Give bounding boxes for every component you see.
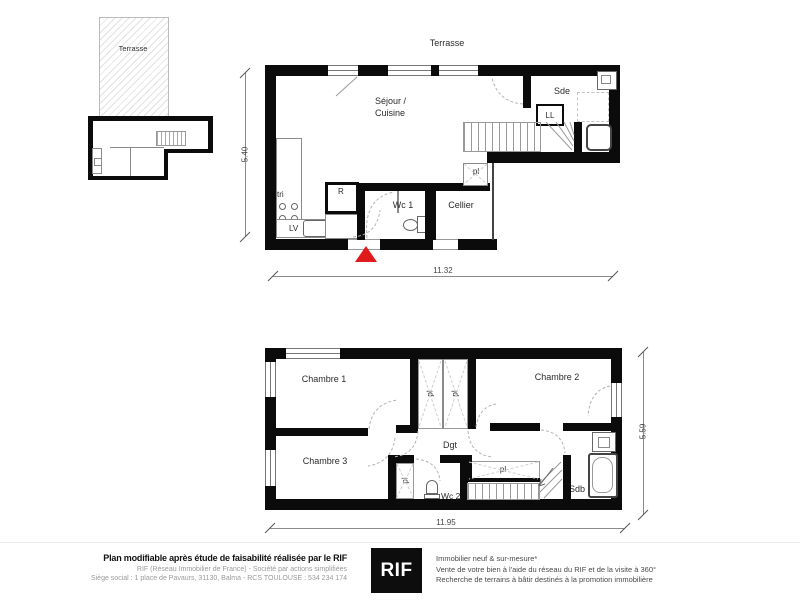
gf-label-lv: LV	[289, 224, 298, 233]
mini-wall-bottom-left	[88, 176, 168, 180]
gf-label-fridge: R	[338, 187, 344, 196]
ff-wall-left-b	[265, 397, 276, 450]
ff-room-dgt-label: Dgt	[438, 440, 462, 450]
gf-wc1-toilet-bowl	[403, 219, 418, 231]
ff-door-arc-closet-right	[468, 431, 493, 457]
gf-door-arc-sde	[492, 78, 523, 104]
footer-tagline-line2: Vente de votre bien à l'aide du réseau d…	[436, 565, 696, 576]
gf-room-sejour-line2: Cuisine	[375, 108, 405, 118]
mini-appliance	[94, 158, 102, 166]
ff-window-right	[611, 383, 622, 417]
window-leaf-lines	[336, 77, 357, 96]
ff-window-top	[286, 348, 340, 359]
gf-cabinet-below-fridge	[325, 214, 359, 239]
gf-window-top-1	[328, 65, 358, 76]
closet-cross-dashes	[397, 164, 538, 497]
ff-closet-horizontal-bottom	[467, 478, 540, 482]
gf-bay-mullion	[431, 65, 439, 76]
ff-closet-pl-label-1: pl	[426, 384, 435, 404]
ff-door-arc-sdb	[541, 430, 565, 453]
ff-wall-left-a	[265, 348, 276, 362]
ff-wall-right-a	[611, 348, 622, 383]
gf-sde-vanity	[577, 92, 609, 122]
gf-cellier-door-opening	[433, 239, 458, 250]
gf-room-cellier-label: Cellier	[438, 200, 484, 210]
rif-logo-text: RIF	[380, 560, 412, 582]
ff-wall-ch3-right	[388, 463, 396, 499]
ff-window-left-1	[265, 362, 276, 397]
gf-wall-bottom-c	[458, 239, 497, 250]
ff-room-chambre1-label: Chambre 1	[294, 374, 354, 384]
ff-door-arc-closet-left	[393, 431, 418, 457]
gf-cooktop-burner-2	[291, 203, 298, 210]
ff-wall-closet-ch2	[468, 359, 476, 429]
gf-closet-pl-label: pl	[464, 167, 488, 176]
stair-winder-treads	[540, 122, 574, 498]
gf-sde-partition-wall	[523, 76, 531, 108]
gf-wall-bottom-a	[265, 239, 348, 250]
mini-wall-right	[208, 116, 213, 153]
gf-thin-wall-right-lower	[492, 163, 494, 240]
footer-company-line2: Siège social : 1 place de Pavaurs, 31130…	[40, 574, 347, 583]
gf-wall-kitchen-hall	[357, 183, 365, 240]
mini-wall-top	[88, 116, 213, 121]
rif-logo: RIF	[371, 548, 422, 593]
ff-bathtub-inner	[592, 457, 613, 493]
footer-tagline-line1: Immobilier neuf & sur-mesure*	[436, 554, 696, 565]
mini-terrace-area	[99, 17, 169, 118]
ff-room-wc2-label: Wc 2	[441, 491, 460, 501]
gf-terrace-label: Terrasse	[422, 38, 472, 48]
floor-plan-page: Terrasse Terrasse Séjour / Cuisine Sde L…	[0, 0, 800, 600]
gf-door-arc-hall	[367, 192, 394, 238]
ff-dim-height-label: 5.59	[639, 412, 648, 452]
ff-wall-wc2-top-a	[388, 455, 414, 463]
ff-wall-top-b	[340, 348, 622, 359]
ff-wall-ch1-closet	[410, 359, 418, 429]
ff-sdb-sink-basin	[598, 437, 610, 448]
gf-cooktop-burner-1	[279, 203, 286, 210]
gf-wall-wc1-cellier	[425, 183, 436, 240]
stair-direction-arrow	[539, 468, 553, 486]
ff-dim-line-width	[270, 528, 625, 529]
ff-window-left-2	[265, 450, 276, 486]
footer-company-line1: RIF (Réseau Immobilier de France) - Soci…	[40, 565, 347, 574]
gf-stair-newel-wall	[574, 122, 582, 152]
ff-wall-ch2-bottom-b	[563, 423, 611, 431]
gf-sde-sink-basin	[601, 75, 611, 84]
gf-dim-width-label: 11.32	[420, 266, 466, 275]
mini-wall-bottom-right	[164, 149, 213, 153]
ff-wc2-toilet-base	[424, 494, 440, 499]
mini-stairs	[156, 131, 186, 146]
gf-wall-bottom-b	[380, 239, 433, 250]
footer-disclaimer: Plan modifiable après étude de faisabili…	[40, 553, 347, 563]
footer-tagline-line3: Recherche de terrains à bâtir destinés à…	[436, 575, 696, 586]
ff-closet-wc2-pl-label: pl	[401, 471, 410, 491]
gf-dim-line-width	[273, 276, 613, 277]
ff-wall-ch1-ch3	[276, 428, 368, 436]
ff-wc2-toilet-bowl	[426, 480, 438, 494]
ff-bathtub	[588, 453, 618, 498]
gf-wall-left	[265, 65, 276, 250]
ff-door-arc-wc2	[416, 459, 440, 481]
mini-inner-wall-v	[130, 147, 131, 176]
ff-wall-ch2-bottom-a	[490, 423, 540, 431]
gf-room-sejour-line1: Séjour /	[375, 96, 406, 106]
gf-dim-height-label: 5.40	[241, 135, 250, 175]
gf-shower	[586, 124, 612, 151]
ff-closet-pl-label-2: pl	[451, 384, 460, 404]
gf-wall-mid-horizontal	[487, 152, 620, 163]
mini-inner-wall-h	[110, 147, 164, 148]
ff-stairs	[467, 483, 540, 500]
ff-dim-width-label: 11.95	[423, 518, 469, 527]
ff-wall-stairs-sdb	[563, 455, 571, 499]
gf-room-sde-label: Sde	[548, 86, 576, 96]
gf-entrance-arrow	[355, 246, 377, 262]
ff-door-arc-ch1	[369, 400, 398, 429]
footer-tagline-block: Immobilier neuf & sur-mesure* Vente de v…	[436, 554, 696, 586]
gf-stairs	[463, 122, 541, 152]
gf-washer-label: LL	[546, 111, 555, 120]
gf-label-tri: tri	[277, 190, 284, 199]
ff-room-chambre2-label: Chambre 2	[527, 372, 587, 382]
ff-window-arc-ch2	[588, 386, 610, 416]
mini-terrace-label: Terrasse	[104, 44, 162, 53]
ff-closet-horizontal-pl-label: pl	[493, 465, 513, 474]
gf-room-wc1-label: Wc 1	[388, 200, 418, 210]
ff-closet-center-divider	[442, 359, 444, 429]
footer-divider	[0, 542, 800, 543]
footer-disclaimer-block: Plan modifiable après étude de faisabili…	[40, 553, 347, 583]
gf-wall-top-b	[358, 65, 388, 76]
ff-room-chambre3-label: Chambre 3	[295, 456, 355, 466]
